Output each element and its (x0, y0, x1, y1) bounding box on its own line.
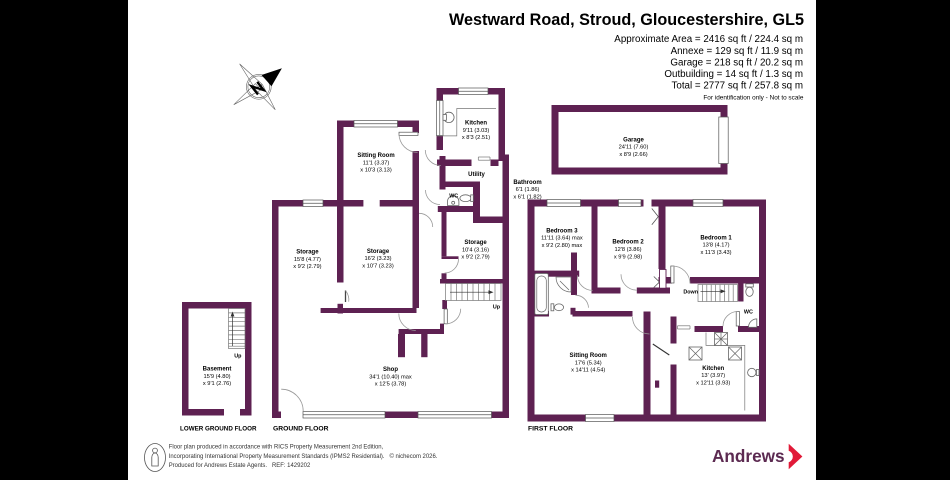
svg-text:Approximate Area = 2416 sq ft: Approximate Area = 2416 sq ft / 224.4 sq… (614, 34, 803, 45)
svg-text:Storage: Storage (464, 240, 487, 246)
svg-text:x 9'2 (2.79): x 9'2 (2.79) (293, 264, 321, 270)
svg-text:Bedroom 2: Bedroom 2 (612, 240, 644, 246)
svg-text:Sitting Room: Sitting Room (570, 353, 607, 359)
svg-text:Westward Road, Stroud, Glouces: Westward Road, Stroud, Gloucestershire, … (449, 11, 804, 29)
svg-text:Sitting Room: Sitting Room (357, 153, 394, 159)
svg-text:WC: WC (449, 193, 458, 199)
svg-text:LOWER GROUND FLOOR: LOWER GROUND FLOOR (180, 426, 257, 433)
svg-text:x 12'5 (3.78): x 12'5 (3.78) (375, 382, 407, 388)
svg-text:x 9'9 (2.98): x 9'9 (2.98) (614, 254, 642, 260)
svg-text:Shop: Shop (383, 367, 398, 373)
svg-text:FIRST FLOOR: FIRST FLOOR (528, 426, 573, 433)
svg-text:15'9 (4.80): 15'9 (4.80) (203, 374, 230, 380)
svg-text:Down: Down (683, 289, 698, 295)
svg-text:24'11 (7.60): 24'11 (7.60) (619, 145, 649, 151)
svg-text:Storage: Storage (296, 250, 319, 256)
svg-text:x 10'7 (3.23): x 10'7 (3.23) (362, 263, 394, 269)
svg-text:x 12'11 (3.93): x 12'11 (3.93) (696, 380, 730, 386)
svg-text:x 9'2 (2.80) max: x 9'2 (2.80) max (542, 243, 583, 249)
svg-text:Kitchen: Kitchen (702, 366, 724, 372)
svg-text:Outbuilding = 14 sq ft / 1.3 s: Outbuilding = 14 sq ft / 1.3 sq m (664, 69, 803, 80)
svg-text:x 14'11 (4.54): x 14'11 (4.54) (571, 368, 605, 374)
svg-text:11'11 (3.64) max: 11'11 (3.64) max (541, 236, 583, 242)
svg-text:Floor plan produced in accorda: Floor plan produced in accordance with R… (169, 445, 384, 451)
svg-text:Bedroom 1: Bedroom 1 (700, 235, 732, 241)
svg-text:Garage = 218 sq ft / 20.2 sq m: Garage = 218 sq ft / 20.2 sq m (670, 57, 803, 68)
svg-text:GROUND FLOOR: GROUND FLOOR (273, 426, 329, 433)
svg-text:Produced for Andrews Estate Ag: Produced for Andrews Estate Agents. REF:… (169, 463, 311, 469)
svg-text:34'1 (10.40) max: 34'1 (10.40) max (369, 374, 412, 380)
svg-text:12'8 (3.86): 12'8 (3.86) (614, 247, 641, 253)
svg-text:Andrews: Andrews (712, 446, 785, 466)
svg-text:Bedroom 3: Bedroom 3 (546, 228, 578, 234)
svg-text:Up: Up (234, 354, 242, 360)
svg-text:WC: WC (744, 310, 753, 316)
svg-text:16'2 (3.23): 16'2 (3.23) (364, 256, 391, 262)
svg-text:x 9'1 (2.76): x 9'1 (2.76) (203, 381, 231, 387)
svg-text:Bathroom: Bathroom (513, 180, 541, 186)
svg-text:6'1 (1.86): 6'1 (1.86) (516, 187, 540, 193)
svg-text:10'4 (3.16): 10'4 (3.16) (462, 247, 489, 253)
svg-text:Up: Up (493, 305, 501, 311)
svg-text:Basement: Basement (203, 367, 232, 373)
svg-text:x 9'2 (2.79): x 9'2 (2.79) (461, 255, 489, 261)
svg-text:17'6 (5.34): 17'6 (5.34) (575, 360, 602, 366)
svg-text:Kitchen: Kitchen (465, 121, 487, 127)
svg-text:Total = 2777 sq ft / 257.8 sq: Total = 2777 sq ft / 257.8 sq m (671, 81, 803, 92)
svg-text:x 11'3 (3.43): x 11'3 (3.43) (700, 250, 731, 256)
svg-text:13' (3.97): 13' (3.97) (701, 373, 725, 379)
svg-text:15'8 (4.77): 15'8 (4.77) (294, 257, 321, 263)
svg-text:x 8'9 (2.66): x 8'9 (2.66) (619, 152, 647, 158)
svg-text:Annexe = 129 sq ft / 11.9 sq m: Annexe = 129 sq ft / 11.9 sq m (671, 46, 803, 57)
svg-text:13'8 (4.17): 13'8 (4.17) (702, 243, 729, 249)
svg-text:11'1 (3.37): 11'1 (3.37) (363, 160, 390, 166)
svg-text:For identification only - Not: For identification only - Not to scale (703, 95, 803, 102)
svg-text:x 8'3 (2.51): x 8'3 (2.51) (462, 135, 490, 141)
svg-text:9'11 (3.03): 9'11 (3.03) (463, 128, 490, 134)
svg-text:Storage: Storage (367, 249, 390, 255)
svg-text:Utility: Utility (468, 172, 485, 178)
svg-text:x 6'1 (1.82): x 6'1 (1.82) (513, 194, 541, 200)
svg-text:x 10'3 (3.13): x 10'3 (3.13) (360, 168, 392, 174)
svg-text:Incorporating International Pr: Incorporating International Property Mea… (169, 453, 438, 460)
svg-text:Garage: Garage (623, 137, 644, 143)
